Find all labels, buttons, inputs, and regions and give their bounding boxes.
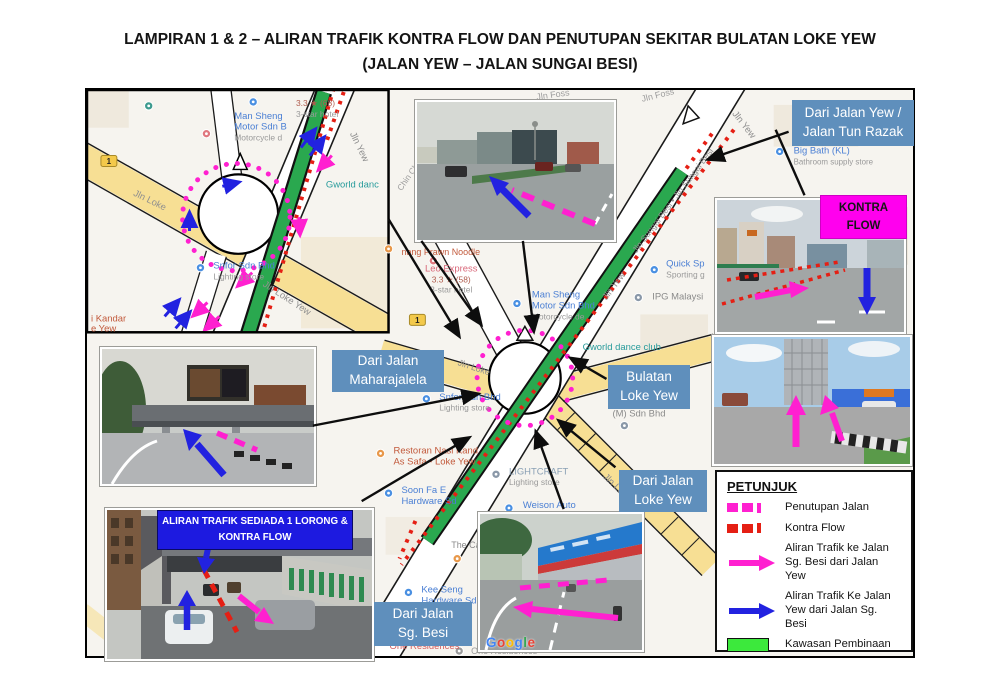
map-label: As Safa - Loke Yew [394,456,476,467]
map-label: Sporting g [666,270,705,280]
legend-item-penutupan: Penutupan Jalan [727,501,901,515]
penutupan-dash-icon [727,503,777,513]
map-label: e Yew [91,323,116,334]
map-label: Lighting store [509,477,560,487]
map-label: Soon Fa E [401,485,446,496]
map-label: Leo Express [425,264,478,275]
map-label: 3-star hotel [296,109,338,119]
blue-arrow-icon [727,602,777,620]
legend-petunjuk: PETUNJUK Penutupan Jalan Kontra Flow Ali… [715,470,913,652]
map-label: Lighting store [439,403,490,413]
street-photo-flyover [102,349,314,484]
map-label: 3-star hotel [430,285,472,295]
callout-line: Bulatan [608,368,690,387]
callout-line: Dari Jalan [374,605,472,624]
legend-label: Kontra Flow [785,522,845,536]
map-label: Hardware Sd [401,496,456,507]
callout-line: Loke Yew [608,387,690,406]
callout-line: Maharajalela [332,371,444,390]
google-letter: g [515,635,524,650]
legend-item-aliran-magenta: Aliran Trafik ke JalanSg. Besi dari Jala… [727,542,901,583]
map-label: Restoran Nasi Kand [394,445,479,456]
legend-item-kontra: Kontra Flow [727,522,901,536]
svg-text:1: 1 [107,157,112,166]
google-letter: e [528,635,536,650]
google-letter: G [486,635,497,650]
street-photo-tower-approach [714,337,910,464]
map-label: The Ca [451,540,480,550]
map-label: Man Sheng [532,290,580,301]
legend-item-aliran-blue: Aliran Trafik Ke JalanYew dari Jalan Sg.… [727,590,901,631]
map-label: Motor Sdn B [234,122,287,133]
callout-line: Loke Yew [619,491,707,510]
map-label: Motorcycle de [532,311,585,321]
callout-line: Dari Jalan [619,472,707,491]
legend-title: PETUNJUK [727,479,901,494]
lampiran-page: LAMPIRAN 1 & 2 – ALIRAN TRAFIK KONTRA FL… [0,0,1000,692]
street-photo-sg-besi [480,514,642,650]
callout-dari-jalan-yew-tun-razak: Dari Jalan Yew / Jalan Tun Razak [792,100,914,146]
svg-text:1: 1 [415,316,420,325]
legend-label: Aliran Trafik ke JalanSg. Besi dari Jala… [785,542,901,583]
map-label: LIGHTCRAFT [509,466,569,477]
callout-line: KONTRA FLOW [158,530,352,546]
map-label: Weison Auto [523,500,576,511]
title-line2: (JALAN YEW – JALAN SUNGAI BESI) [0,53,1000,78]
legend-item-kawasan: Kawasan Pembinaan [727,638,901,652]
callout-bulatan-loke-yew: Bulatan Loke Yew [608,365,690,409]
callout-line: Dari Jalan [332,352,444,371]
map-label: Motor Sdn Bhd [532,300,595,311]
map-label: Snfor Sdn Bhd [213,261,274,272]
diagram-board: 11 Jln FossJln FossJln YewJln Sungai Bes… [85,88,915,658]
magenta-arrow-icon [727,554,777,572]
map-label: Man Sheng [234,111,282,122]
callout-line: Sg. Besi [374,624,472,643]
map-label: nang Prawn Noodle [401,247,480,257]
kontra-dash-icon [727,523,777,533]
map-label: 3.3 ★ (58) [432,275,471,285]
callout-dari-jalan-sg-besi: Dari Jalan Sg. Besi [374,602,472,646]
callout-line: Jalan Tun Razak [792,123,914,142]
google-letter: o [506,635,515,650]
google-watermark: Google [486,635,536,650]
page-title: LAMPIRAN 1 & 2 – ALIRAN TRAFIK KONTRA FL… [0,28,1000,78]
callout-line: KONTRA [821,199,906,217]
callout-kontra-flow: KONTRA FLOW [820,195,907,239]
callout-line: FLOW [821,217,906,235]
map-label: 3.3 ★ (68) [296,98,335,108]
map-label: (M) Sdn Bhd [612,409,665,420]
map-label: Gworld danc [326,179,379,190]
map-label: Lighting store [213,272,264,282]
legend-label: Aliran Trafik Ke JalanYew dari Jalan Sg.… [785,590,901,631]
map-label: Bathroom supply store [794,157,874,166]
callout-aliran-trafik-sediada: ALIRAN TRAFIK SEDIADA 1 LORONG & KONTRA … [157,510,353,550]
map-label: Motorcycle d [234,133,282,143]
callout-dari-jalan-maharajalela: Dari Jalan Maharajalela [332,350,444,392]
map-label: Big Bath (KL) [794,146,850,157]
callout-line: ALIRAN TRAFIK SEDIADA 1 LORONG & [158,514,352,530]
title-line1: LAMPIRAN 1 & 2 – ALIRAN TRAFIK KONTRA FL… [0,28,1000,53]
map-label: Kee Seng [421,584,463,595]
google-letter: o [497,635,506,650]
map-label: Gworld dance club [583,342,661,353]
map-label: IPG Malaysi [652,292,703,303]
callout-dari-jalan-loke-yew: Dari Jalan Loke Yew [619,470,707,512]
map-label: Quick Sp [666,259,704,270]
kawasan-green-swatch [727,638,777,652]
legend-label: Kawasan Pembinaan [785,638,891,652]
map-label: Snfor Sdn Bhd [439,392,500,403]
legend-label: Penutupan Jalan [785,501,869,515]
callout-line: Dari Jalan Yew / [792,104,914,123]
street-photo-jalan-yew-junction [417,102,614,240]
